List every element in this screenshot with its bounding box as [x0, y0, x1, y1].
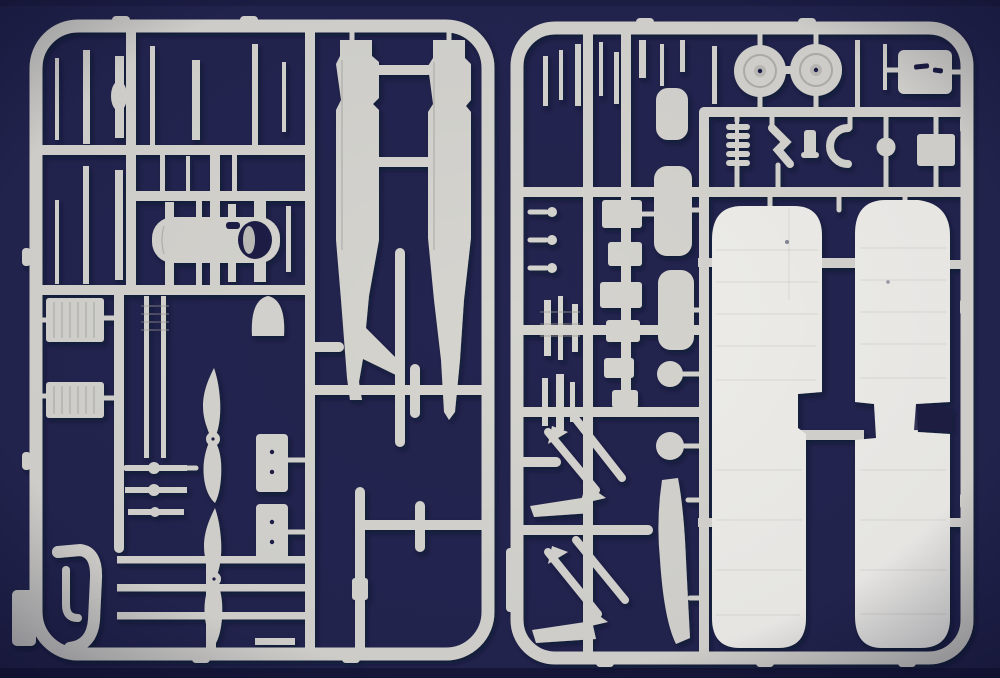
photo-vignette	[0, 0, 1000, 678]
model-kit-sprues-photo: Two light-grey injection-molded plastic …	[0, 0, 1000, 678]
photo-bottom-edge	[0, 668, 1000, 678]
photo-canvas: Two light-grey injection-molded plastic …	[0, 0, 1000, 678]
photo-top-edge	[0, 0, 1000, 6]
